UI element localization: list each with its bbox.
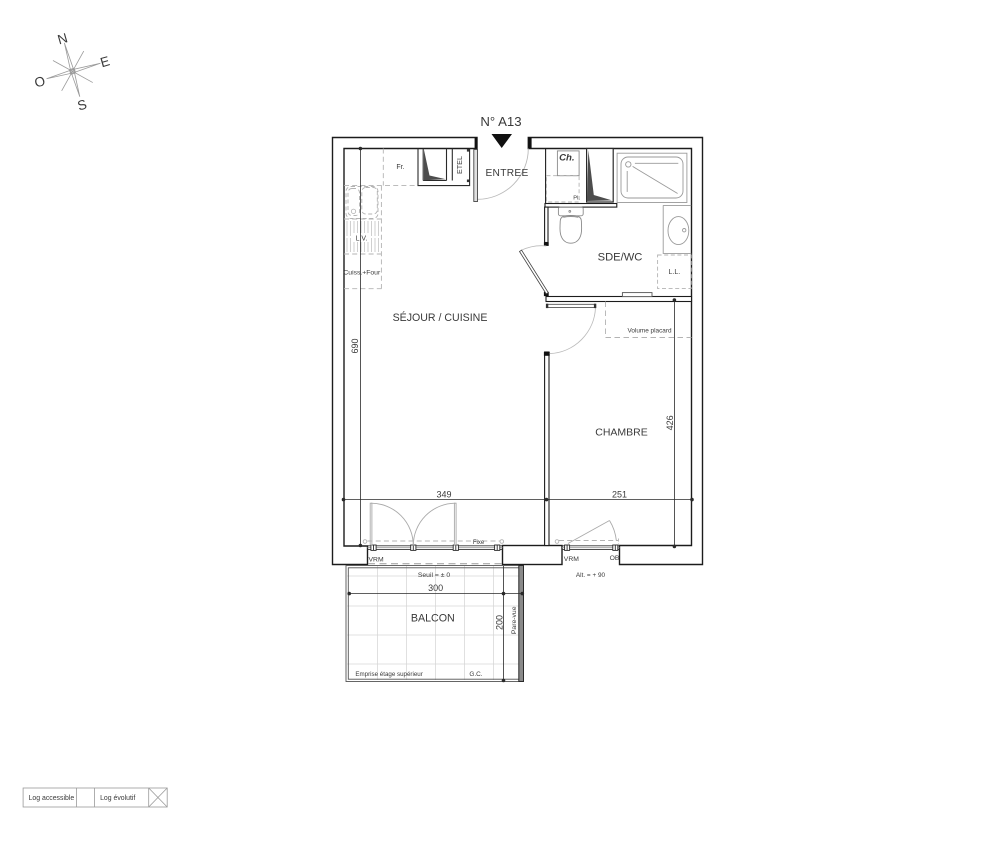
svg-text:Alt. = + 90: Alt. = + 90 (576, 572, 606, 579)
svg-text:G.C.: G.C. (469, 671, 482, 678)
svg-text:200: 200 (495, 615, 505, 630)
svg-text:Seuil = ± 0: Seuil = ± 0 (418, 572, 450, 579)
svg-text:349: 349 (436, 489, 451, 499)
svg-text:OB: OB (610, 555, 620, 562)
svg-text:Fixe: Fixe (473, 540, 485, 546)
svg-text:Pl.: Pl. (573, 195, 580, 201)
svg-text:CHAMBRE: CHAMBRE (595, 427, 648, 439)
svg-text:300: 300 (428, 583, 443, 593)
svg-text:L.V.: L.V. (356, 235, 368, 242)
svg-text:ENTREE: ENTREE (485, 168, 528, 179)
svg-text:SÉJOUR / CUISINE: SÉJOUR / CUISINE (393, 311, 488, 324)
svg-text:ETEL: ETEL (455, 156, 464, 174)
svg-text:Cuiss.+Four: Cuiss.+Four (343, 270, 381, 277)
svg-text:251: 251 (612, 489, 627, 499)
svg-text:SDE/WC: SDE/WC (598, 252, 643, 264)
svg-text:BALCON: BALCON (411, 613, 455, 625)
svg-text:426: 426 (665, 415, 675, 430)
svg-text:N° A13: N° A13 (480, 114, 521, 129)
svg-text:Emprise étage supérieur: Emprise étage supérieur (355, 671, 422, 678)
svg-text:690: 690 (350, 338, 360, 353)
svg-text:Fr.: Fr. (396, 164, 404, 171)
svg-text:VRM: VRM (369, 557, 384, 564)
svg-text:Ch.: Ch. (559, 152, 574, 163)
svg-text:Pare-vue: Pare-vue (511, 606, 518, 634)
svg-text:Volume placard: Volume placard (627, 327, 671, 334)
svg-text:Log évolutif: Log évolutif (100, 795, 135, 802)
svg-text:L.L.: L.L. (669, 269, 681, 276)
svg-text:VRM: VRM (564, 556, 579, 563)
svg-text:Log accessible: Log accessible (29, 795, 75, 802)
